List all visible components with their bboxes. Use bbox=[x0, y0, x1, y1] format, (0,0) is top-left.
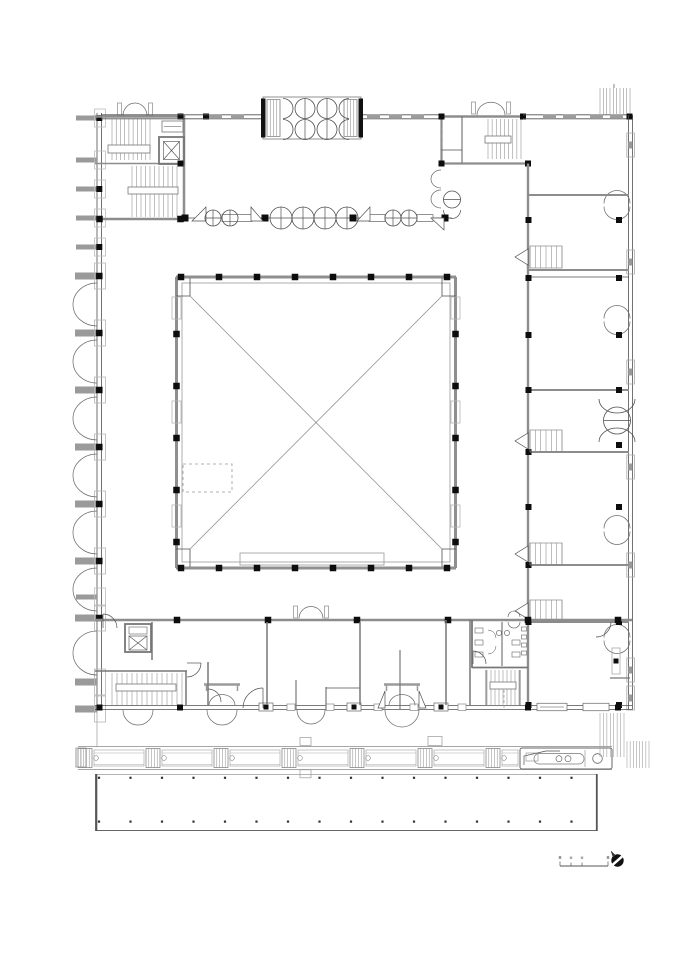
top-left-stair-core bbox=[95, 103, 209, 222]
bottom-wing bbox=[95, 606, 632, 727]
floor-plan-drawing bbox=[0, 0, 700, 965]
legend bbox=[559, 851, 624, 867]
canopy-walkway bbox=[76, 713, 649, 778]
left-wall bbox=[73, 109, 106, 747]
courtyard-atrium bbox=[172, 274, 460, 572]
floor-plan-page bbox=[0, 0, 700, 965]
colonnade-row bbox=[182, 207, 453, 230]
top-right-stair-core bbox=[431, 102, 531, 219]
entrance-vestibule bbox=[261, 97, 363, 140]
plaza bbox=[96, 774, 597, 831]
right-wing bbox=[515, 84, 635, 710]
